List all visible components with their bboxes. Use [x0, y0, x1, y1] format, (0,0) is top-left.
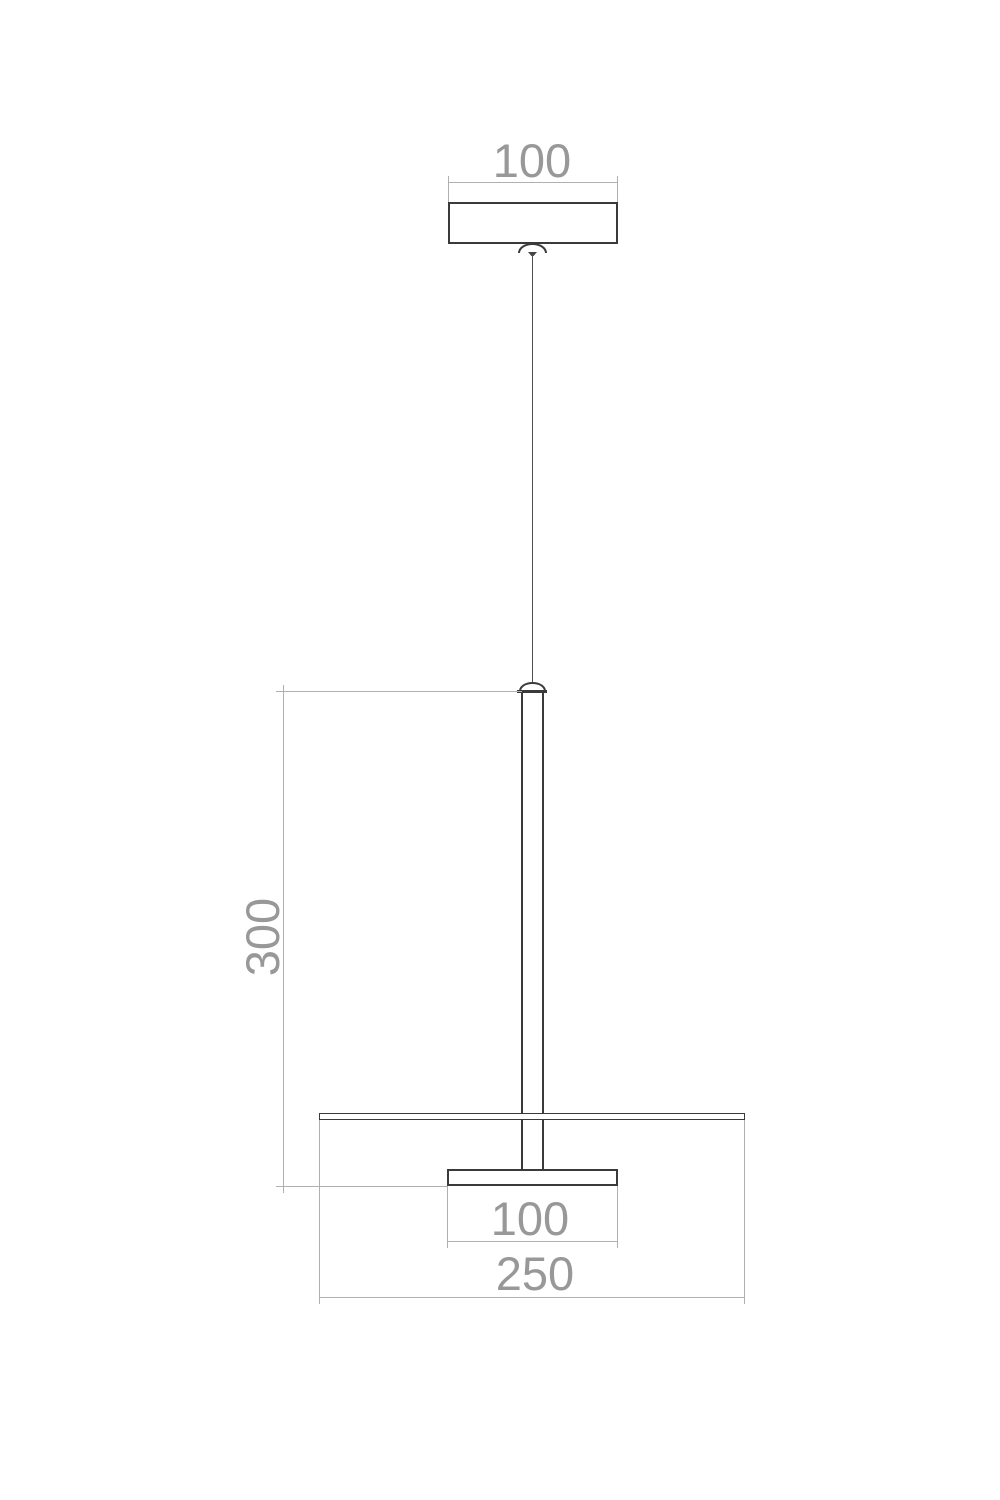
ceiling-canopy [448, 202, 618, 244]
extension-line-shade-left [319, 1120, 320, 1304]
dimension-line-canopy-width [448, 182, 618, 183]
dimension-label-rod-height: 300 [241, 877, 285, 997]
extension-line-height-bottom [276, 1186, 448, 1187]
mounting-flange [447, 1169, 618, 1186]
extension-line-canopy-right [617, 176, 618, 203]
pendant-lamp-dimension-drawing: 100 300 100 250 [0, 0, 1000, 1500]
dimension-label-shade-diameter: 250 [475, 1252, 595, 1296]
dimension-label-canopy-width: 100 [472, 139, 592, 183]
dimension-label-flange-width: 100 [470, 1197, 590, 1241]
pendant-rod [521, 693, 544, 1170]
extension-line-canopy-left [448, 176, 449, 203]
extension-line-height-top [276, 691, 522, 692]
extension-line-shade-right [744, 1120, 745, 1304]
extension-line-flange-right [617, 1186, 618, 1248]
extension-line-flange-left [447, 1186, 448, 1248]
cable-gland-dome [518, 243, 547, 253]
suspension-cable [532, 255, 533, 683]
dimension-line-flange-width [447, 1241, 618, 1242]
dimension-line-shade-diameter [319, 1297, 745, 1298]
shade-disc [319, 1113, 745, 1120]
